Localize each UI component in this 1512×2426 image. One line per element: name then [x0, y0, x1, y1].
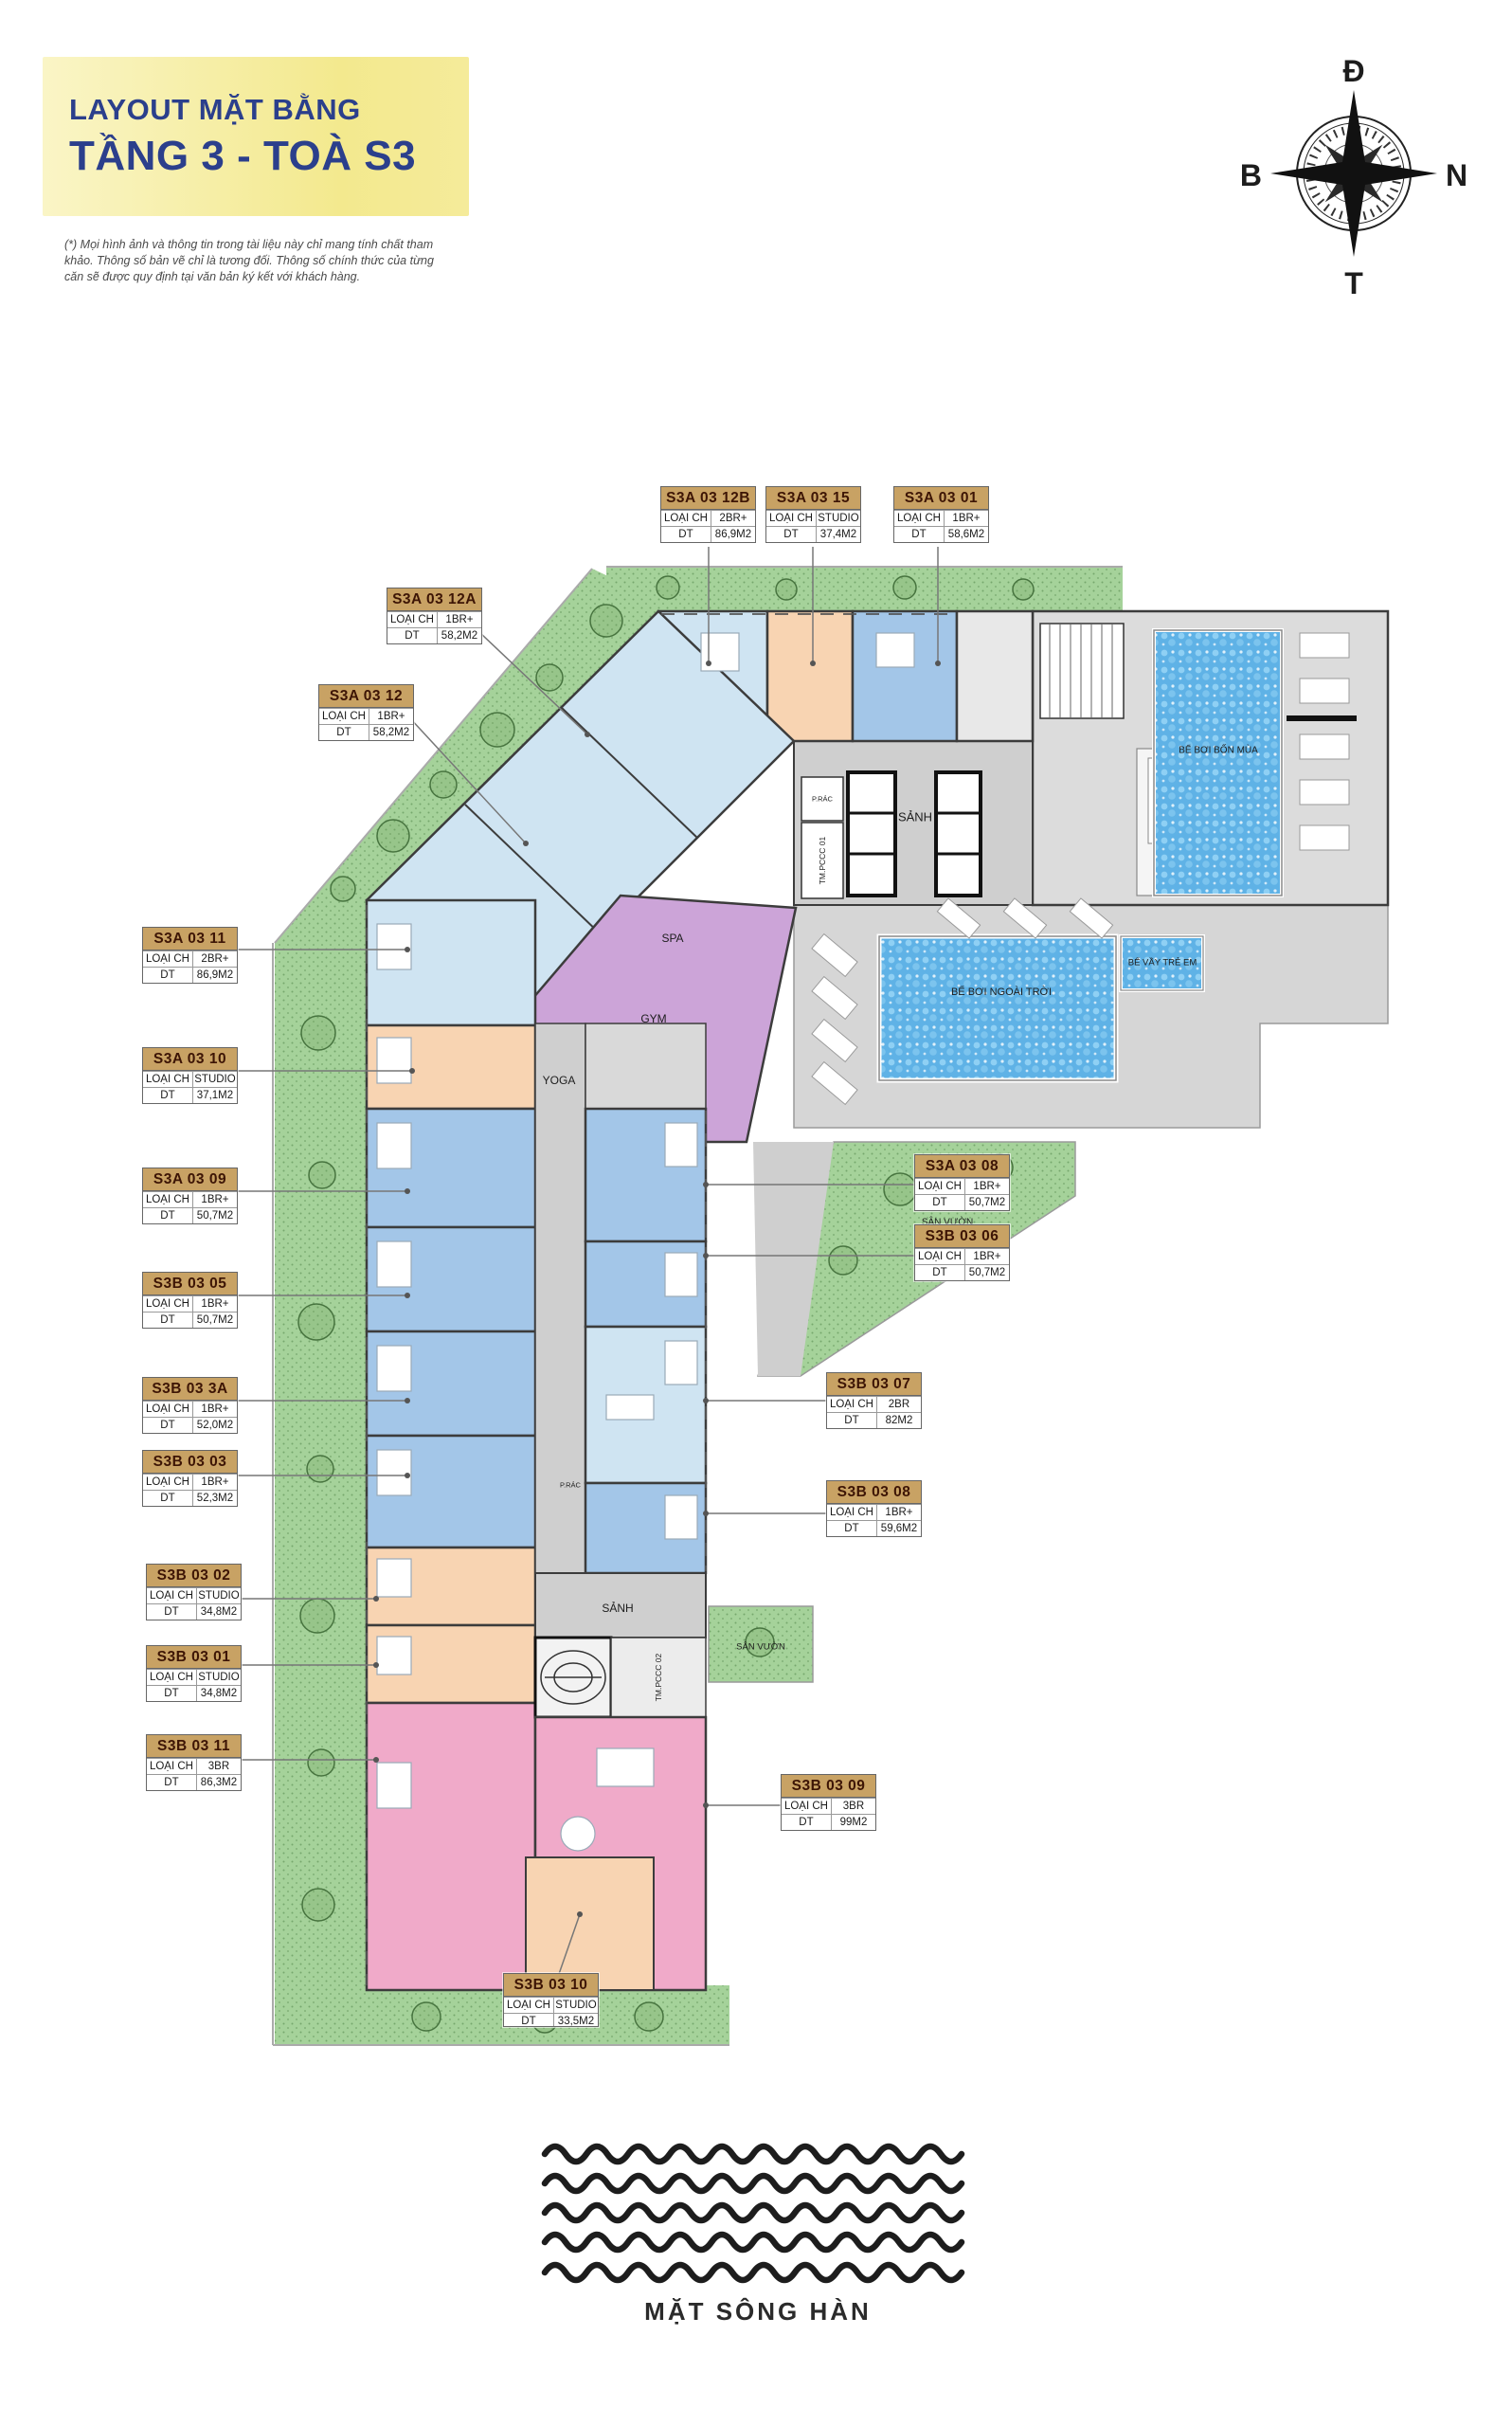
unit-type-value: 2BR — [877, 1397, 921, 1412]
unit-area-value: 86,9M2 — [711, 527, 755, 542]
unit-code: S3A 03 01 — [894, 487, 988, 510]
river-side-label: MẶT SÔNG HÀN — [545, 2297, 971, 2326]
unit-label-s3a-03-10: S3A 03 10 LOẠI CHSTUDIO DT37,1M2 — [142, 1047, 238, 1104]
unit-type-value: 1BR+ — [193, 1192, 237, 1207]
compass-east-label: Đ — [1342, 54, 1364, 88]
vertical-wing-units — [367, 900, 706, 1990]
unit-area-value: 59,6M2 — [877, 1521, 921, 1536]
unit-label-s3a-03-09: S3A 03 09 LOẠI CH1BR+ DT50,7M2 — [142, 1168, 238, 1224]
gym-label: GYM — [640, 1012, 666, 1025]
unit-label-s3a-03-15: S3A 03 15 LOẠI CHSTUDIO DT37,4M2 — [765, 486, 861, 543]
unit-type-value: 1BR+ — [369, 709, 413, 724]
indoor-pool — [1154, 630, 1282, 896]
unit-code: S3B 03 08 — [827, 1481, 921, 1504]
unit-code: S3B 03 01 — [147, 1646, 241, 1669]
unit-area-value: 34,8M2 — [197, 1604, 241, 1620]
unit-type-value: 1BR+ — [193, 1296, 237, 1312]
unit-label-s3b-03-10: S3B 03 10 LOẠI CHSTUDIO DT33,5M2 — [503, 1973, 599, 2027]
unit-code: S3B 03 11 — [147, 1735, 241, 1758]
compass-rose-icon: Đ B N T — [1240, 54, 1467, 300]
unit-label-s3b-03-09: S3B 03 09 LOẠI CH3BR DT99M2 — [781, 1774, 876, 1831]
unit-code: S3B 03 09 — [782, 1775, 875, 1798]
unit-type-value: STUDIO — [193, 1072, 237, 1087]
fire-tech-room-2-label: TM.PCCC 02 — [654, 1654, 663, 1702]
unit-type-value: 2BR+ — [711, 511, 755, 526]
unit-type-key: LOẠI CH — [827, 1397, 877, 1412]
indoor-pool-label: BỂ BƠI BỐN MÙA — [1179, 746, 1258, 756]
unit-type-key: LOẠI CH — [147, 1759, 197, 1774]
unit-label-s3a-03-12a: S3A 03 12A LOẠI CH1BR+ DT58,2M2 — [387, 588, 482, 644]
compass-north-label: B — [1240, 158, 1262, 192]
unit-type-key: LOẠI CH — [766, 511, 817, 526]
unit-type-value: 3BR — [197, 1759, 241, 1774]
unit-code: S3A 03 12 — [319, 685, 413, 708]
floorplan-page: { "header": { "title_line1": "LAYOUT MẶT… — [0, 0, 1512, 2426]
unit-area-value: 99M2 — [832, 1815, 875, 1830]
unit-code: S3B 03 03 — [143, 1451, 237, 1474]
yoga-label: YOGA — [543, 1074, 576, 1087]
unit-type-key: LOẠI CH — [661, 511, 711, 526]
unit-code: S3B 03 3A — [143, 1378, 237, 1401]
unit-type-key: LOẠI CH — [143, 951, 193, 967]
lobby-bottom-label: SẢNH — [602, 1602, 633, 1615]
unit-type-value: STUDIO — [817, 511, 860, 526]
unit-area-value: 50,7M2 — [193, 1313, 237, 1328]
unit-type-key: LOẠI CH — [504, 1998, 554, 2013]
compass-south-label: N — [1446, 158, 1467, 192]
unit-label-s3a-03-11: S3A 03 11 LOẠI CH2BR+ DT86,9M2 — [142, 927, 238, 984]
lobby-top-label: SẢNH — [898, 810, 932, 824]
unit-type-value: 1BR+ — [193, 1475, 237, 1490]
unit-code: S3A 03 12A — [387, 588, 481, 611]
unit-label-s3b-03-01: S3B 03 01 LOẠI CHSTUDIO DT34,8M2 — [146, 1645, 242, 1702]
unit-type-key: LOẠI CH — [915, 1249, 965, 1264]
unit-area-key: DT — [504, 2014, 554, 2027]
unit-area-value: 33,5M2 — [554, 2014, 598, 2027]
unit-area-value: 58,2M2 — [438, 628, 481, 643]
unit-area-key: DT — [147, 1686, 197, 1701]
unit-area-key: DT — [143, 1208, 193, 1223]
top-right-wing — [1033, 611, 1388, 905]
unit-code: S3B 03 07 — [827, 1373, 921, 1396]
unit-area-key: DT — [319, 725, 369, 740]
unit-type-key: LOẠI CH — [147, 1588, 197, 1603]
unit-type-key: LOẠI CH — [143, 1192, 193, 1207]
unit-area-value: 82M2 — [877, 1413, 921, 1428]
unit-area-value: 37,1M2 — [193, 1088, 237, 1103]
unit-area-value: 52,0M2 — [193, 1418, 237, 1433]
kids-pool-label: BỂ VẦY TRẺ EM — [1128, 958, 1197, 969]
unit-area-value: 86,9M2 — [193, 968, 237, 983]
fire-tech-room-1-label: TM.PCCC 01 — [818, 837, 827, 885]
river-waves-icon — [545, 2146, 962, 2280]
unit-area-key: DT — [661, 527, 711, 542]
unit-area-key: DT — [143, 1418, 193, 1433]
unit-label-s3b-03-11: S3B 03 11 LOẠI CH3BR DT86,3M2 — [146, 1734, 242, 1791]
unit-area-value: 58,2M2 — [369, 725, 413, 740]
garden-2-label: SÂN VƯỜN — [736, 1642, 785, 1653]
unit-area-key: DT — [143, 968, 193, 983]
unit-area-key: DT — [143, 1088, 193, 1103]
unit-label-s3b-03-02: S3B 03 02 LOẠI CHSTUDIO DT34,8M2 — [146, 1564, 242, 1620]
unit-label-s3b-03-3a: S3B 03 3A LOẠI CH1BR+ DT52,0M2 — [142, 1377, 238, 1434]
unit-type-key: LOẠI CH — [143, 1296, 193, 1312]
unit-label-s3a-03-12: S3A 03 12 LOẠI CH1BR+ DT58,2M2 — [318, 684, 414, 741]
unit-type-value: STUDIO — [554, 1998, 598, 2013]
compass-west-label: T — [1344, 266, 1363, 300]
unit-type-key: LOẠI CH — [915, 1179, 965, 1194]
unit-area-key: DT — [827, 1521, 877, 1536]
unit-code: S3B 03 02 — [147, 1565, 241, 1587]
unit-label-s3a-03-01: S3A 03 01 LOẠI CH1BR+ DT58,6M2 — [893, 486, 989, 543]
unit-area-key: DT — [915, 1265, 965, 1280]
unit-area-value: 34,8M2 — [197, 1686, 241, 1701]
outdoor-pool-label: BỂ BƠI NGOÀI TRỜI — [951, 987, 1052, 998]
unit-area-value: 52,3M2 — [193, 1491, 237, 1506]
unit-area-key: DT — [143, 1491, 193, 1506]
unit-area-key: DT — [827, 1413, 877, 1428]
unit-area-value: 86,3M2 — [197, 1775, 241, 1790]
unit-code: S3A 03 15 — [766, 487, 860, 510]
trash-room-1-label: P.RÁC — [812, 795, 833, 804]
unit-type-key: LOẠI CH — [782, 1799, 832, 1814]
unit-code: S3B 03 05 — [143, 1273, 237, 1295]
unit-code: S3A 03 09 — [143, 1168, 237, 1191]
unit-type-key: LOẠI CH — [147, 1670, 197, 1685]
unit-label-s3b-03-08: S3B 03 08 LOẠI CH1BR+ DT59,6M2 — [826, 1480, 922, 1537]
trash-room-2-label: P.RÁC — [560, 1481, 581, 1490]
unit-area-key: DT — [782, 1815, 832, 1830]
unit-type-key: LOẠI CH — [143, 1402, 193, 1417]
unit-type-value: 1BR+ — [965, 1179, 1009, 1194]
unit-code: S3B 03 10 — [504, 1974, 598, 1997]
unit-code: S3A 03 11 — [143, 928, 237, 950]
unit-code: S3A 03 08 — [915, 1155, 1009, 1178]
unit-area-key: DT — [147, 1604, 197, 1620]
unit-label-s3b-03-06: S3B 03 06 LOẠI CH1BR+ DT50,7M2 — [914, 1224, 1010, 1281]
unit-area-key: DT — [894, 527, 945, 542]
unit-type-value: 1BR+ — [877, 1505, 921, 1520]
unit-area-key: DT — [766, 527, 817, 542]
unit-type-value: 1BR+ — [965, 1249, 1009, 1264]
unit-code: S3A 03 10 — [143, 1048, 237, 1071]
unit-area-key: DT — [915, 1195, 965, 1210]
unit-type-value: 1BR+ — [438, 612, 481, 627]
unit-label-s3a-03-12b: S3A 03 12B LOẠI CH2BR+ DT86,9M2 — [660, 486, 756, 543]
unit-area-value: 50,7M2 — [965, 1195, 1009, 1210]
unit-code: S3B 03 06 — [915, 1225, 1009, 1248]
unit-code: S3A 03 12B — [661, 487, 755, 510]
unit-area-value: 50,7M2 — [965, 1265, 1009, 1280]
unit-type-value: 3BR — [832, 1799, 875, 1814]
unit-area-key: DT — [387, 628, 438, 643]
unit-area-value: 58,6M2 — [945, 527, 988, 542]
unit-type-key: LOẠI CH — [143, 1072, 193, 1087]
unit-type-key: LOẠI CH — [387, 612, 438, 627]
spa-label: SPA — [661, 932, 683, 945]
unit-label-s3b-03-03: S3B 03 03 LOẠI CH1BR+ DT52,3M2 — [142, 1450, 238, 1507]
unit-area-value: 50,7M2 — [193, 1208, 237, 1223]
unit-area-value: 37,4M2 — [817, 527, 860, 542]
unit-type-key: LOẠI CH — [894, 511, 945, 526]
unit-type-key: LOẠI CH — [319, 709, 369, 724]
unit-label-s3a-03-08: S3A 03 08 LOẠI CH1BR+ DT50,7M2 — [914, 1154, 1010, 1211]
unit-type-value: 1BR+ — [193, 1402, 237, 1417]
unit-area-key: DT — [143, 1313, 193, 1328]
unit-type-value: STUDIO — [197, 1588, 241, 1603]
unit-label-s3b-03-07: S3B 03 07 LOẠI CH2BR DT82M2 — [826, 1372, 922, 1429]
unit-type-key: LOẠI CH — [143, 1475, 193, 1490]
unit-label-s3b-03-05: S3B 03 05 LOẠI CH1BR+ DT50,7M2 — [142, 1272, 238, 1329]
unit-type-value: 1BR+ — [945, 511, 988, 526]
unit-type-key: LOẠI CH — [827, 1505, 877, 1520]
unit-type-value: STUDIO — [197, 1670, 241, 1685]
unit-area-key: DT — [147, 1775, 197, 1790]
unit-type-value: 2BR+ — [193, 951, 237, 967]
